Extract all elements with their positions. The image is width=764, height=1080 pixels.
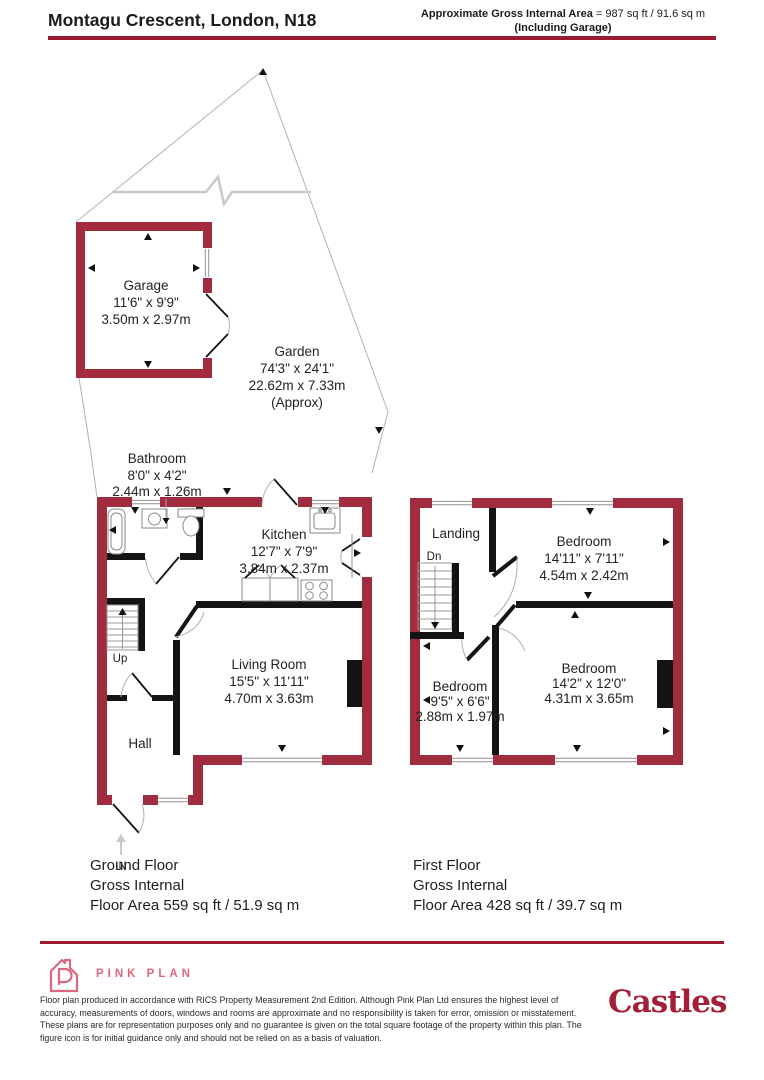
footer-rule [40,941,724,944]
ground-floor-subtitle: Gross Internal [90,876,299,896]
bedroom-main-dim-metric: 4.31m x 3.65m [544,691,633,706]
garage-label: Garage [123,278,168,293]
ground-floor-title: Ground Floor [90,856,299,876]
bathroom-dim-metric: 2.44m x 1.26m [112,484,201,499]
bedroom-main-window [555,755,637,765]
area-line: Approximate Gross Internal Area = 987 sq… [408,8,718,22]
living-room-dim-imperial: 15'5" x 11'11" [229,674,309,689]
header-rule [48,36,716,40]
living-room-dim-metric: 4.70m x 3.63m [224,691,313,706]
garage-window [203,248,212,278]
first-floor-area: Floor Area 428 sq ft / 39.7 sq m [413,896,622,916]
bedroom-top-dim-metric: 4.54m x 2.42m [539,568,628,583]
bedrooms-divider-wall [516,601,673,608]
first-floor-subtitle: Gross Internal [413,876,622,896]
castles-logo: Castles [608,984,726,1020]
hob [301,580,332,601]
bedroom-top-label: Bedroom [557,534,612,549]
hall-label: Hall [128,736,151,751]
area-note: (Including Garage) [408,22,718,36]
living-room-bay-window [242,755,322,765]
chimney-breast-first [657,660,673,708]
floorplan-page: Garden 74'3" x 24'1" 22.62m x 7.33m (App… [0,0,764,1080]
stairs-up: Up [107,605,138,665]
ground-floor-plan: Up [97,451,372,873]
bedroom-small-dim-imperial: 9'5" x 6'6" [430,694,489,709]
bedrooms-vertical-wall [492,625,499,755]
landing-bedroom-small-wall [410,632,464,639]
area-label: Approximate Gross Internal Area [421,8,593,20]
kitchen-dim-imperial: 12'7" x 7'9" [251,544,318,559]
landing-window [432,498,472,508]
landing-bedroom-wall [489,508,496,572]
bathroom-label: Bathroom [128,451,187,466]
garden-dim-metric: 22.62m x 7.33m [249,378,346,393]
kitchen-french-door [362,537,372,577]
garage-dim-metric: 3.50m x 2.97m [101,312,190,327]
garden-arrow [259,68,267,75]
living-room-label: Living Room [231,657,306,672]
chimney-breast [347,660,362,707]
bedroom-main-dim-imperial: 14'2" x 12'0" [552,676,626,691]
pink-plan-label: PINK PLAN [96,968,194,980]
garage-door-opening [203,293,212,358]
back-door-opening [262,497,298,507]
first-floor-plan: Dn Landing Bedroom 14'11" x 7'11" 4.54m … [410,498,683,765]
area-value: = 987 sq ft / 91.6 sq m [593,8,705,20]
bathroom-dim-imperial: 8'0" x 4'2" [127,468,186,483]
stairs-wall [107,598,145,605]
kitchen-dim-metric: 3.84m x 2.37m [239,561,328,576]
garage-dim-imperial: 11'6" x 9'9" [113,295,179,310]
kitchen-window [312,497,339,507]
bedroom-small-dim-metric: 2.88m x 1.97m [415,709,504,724]
page-title: Montagu Crescent, London, N18 [48,10,316,31]
first-floor-caption: First Floor Gross Internal Floor Area 42… [413,856,622,916]
bedroom-small-window [452,755,493,765]
first-floor-title: First Floor [413,856,622,876]
kitchen-living-wall [196,601,362,608]
hall-wall [107,695,127,701]
hall-window [158,795,188,805]
landing-label: Landing [432,526,480,541]
stairs-down: Dn [418,551,459,632]
pink-plan-brand: PINK PLAN [46,954,194,994]
entrance-door-opening [112,795,143,805]
kitchen-label: Kitchen [261,527,306,542]
gross-internal-area: Approximate Gross Internal Area = 987 sq… [408,8,718,35]
ground-floor-caption: Ground Floor Gross Internal Floor Area 5… [90,856,299,916]
garden-dim-imperial: 74'3" x 24'1" [260,361,334,376]
bedroom-small-label: Bedroom [433,679,488,694]
bedroom-top-window [552,498,613,508]
disclaimer-text: Floor plan produced in accordance with R… [40,994,585,1044]
bedroom-main-label: Bedroom [562,661,617,676]
stairs-dn-label: Dn [427,551,442,563]
pink-plan-house-icon [46,954,82,994]
floorplan-drawing: Garden 74'3" x 24'1" 22.62m x 7.33m (App… [0,0,764,1080]
bedroom-top-dim-imperial: 14'11" x 7'11" [544,551,624,566]
bathtub [108,509,125,554]
ground-floor-area: Floor Area 559 sq ft / 51.9 sq m [90,896,299,916]
garden-label: Garden [274,344,319,359]
garage: Garage 11'6" x 9'9" 3.50m x 2.97m [76,222,230,378]
stairs-up-label: Up [113,653,128,665]
garden-approx-note: (Approx) [271,395,323,410]
